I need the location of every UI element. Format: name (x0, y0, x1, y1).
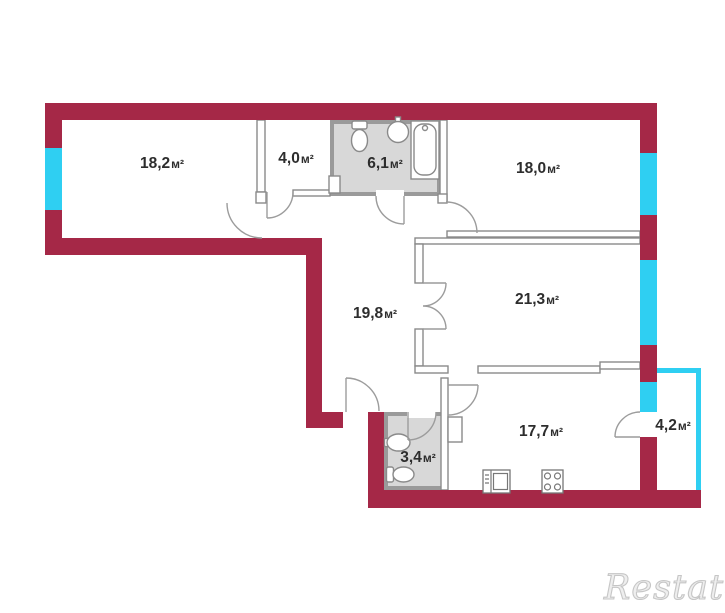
wc-door-gap (407, 410, 436, 418)
balcony-rail-right (696, 368, 701, 490)
wall-stub (306, 412, 343, 428)
wall-right-1 (640, 103, 657, 153)
partition-room3-bottom-mid (478, 366, 600, 373)
partition-room3-bottom-left (415, 366, 448, 373)
bathroom-door-gap (376, 190, 404, 198)
window-right-1 (640, 153, 657, 215)
bathtub-icon (411, 121, 439, 179)
wc-toilet-icon (387, 467, 415, 482)
room-label-bathroom: 6,1м² (367, 155, 402, 172)
wall-top (45, 103, 657, 120)
oven-icon (483, 470, 510, 493)
room-label-hallway: 19,8м² (353, 305, 397, 322)
room-label-room-3: 21,3м² (515, 291, 559, 308)
partition-room1-hall (257, 120, 265, 192)
door-arc-room3-double (423, 283, 446, 329)
door-post (438, 194, 447, 203)
window-right-2 (640, 260, 657, 345)
toilet-icon (352, 121, 368, 152)
duct-shaft (329, 176, 340, 193)
door-post (256, 192, 266, 203)
partition-room3-bottom-right (600, 362, 640, 369)
floor-plan: 18,2м² 4,0м² 6,1м² 18,0м² 19,8м² 21,3м² … (0, 0, 725, 613)
room-label-entry-hall: 4,0м² (278, 150, 313, 167)
door-arc-kitchen (448, 385, 478, 415)
stove-icon (542, 470, 563, 493)
window-left (45, 148, 62, 210)
kitchen-appliances (483, 470, 563, 493)
partition-room2-left (440, 120, 447, 202)
wall-wing-bottom (45, 238, 322, 255)
wall-right-2 (640, 215, 657, 260)
door-arc-balcony (615, 412, 640, 437)
duct-shaft (448, 417, 462, 442)
window-balcony (640, 382, 657, 412)
partition-room2-bottom (447, 231, 640, 237)
room-label-wc: 3,4м² (400, 449, 435, 466)
door-arc-entryhall (267, 192, 293, 218)
room-label-room-1: 18,2м² (140, 155, 184, 172)
balcony-rail-top (657, 368, 701, 373)
wall-right-3 (640, 345, 657, 382)
partition-room3-left-lower (415, 329, 423, 366)
door-arc-room1 (227, 203, 262, 238)
partition-room3-top (415, 238, 640, 244)
partition-entryhall-bottom (293, 190, 330, 196)
door-arc-bathroom (376, 196, 404, 224)
door-arc-room2 (446, 202, 477, 233)
watermark-logo: Restate (604, 568, 725, 608)
room-label-balcony: 4,2м² (655, 417, 690, 434)
wall-step-vertical (306, 238, 322, 428)
wall-right-4 (640, 437, 657, 497)
floor-plan-svg: 18,2м² 4,0м² 6,1м² 18,0м² 19,8м² 21,3м² … (0, 0, 725, 613)
door-arc-hall-kitchen (346, 378, 379, 412)
partition-room3-left-upper (415, 244, 423, 283)
room-label-room-2: 18,0м² (516, 160, 560, 177)
doors (227, 192, 640, 440)
room-label-kitchen: 17,7м² (519, 423, 563, 440)
partition-wc-right (441, 378, 448, 490)
